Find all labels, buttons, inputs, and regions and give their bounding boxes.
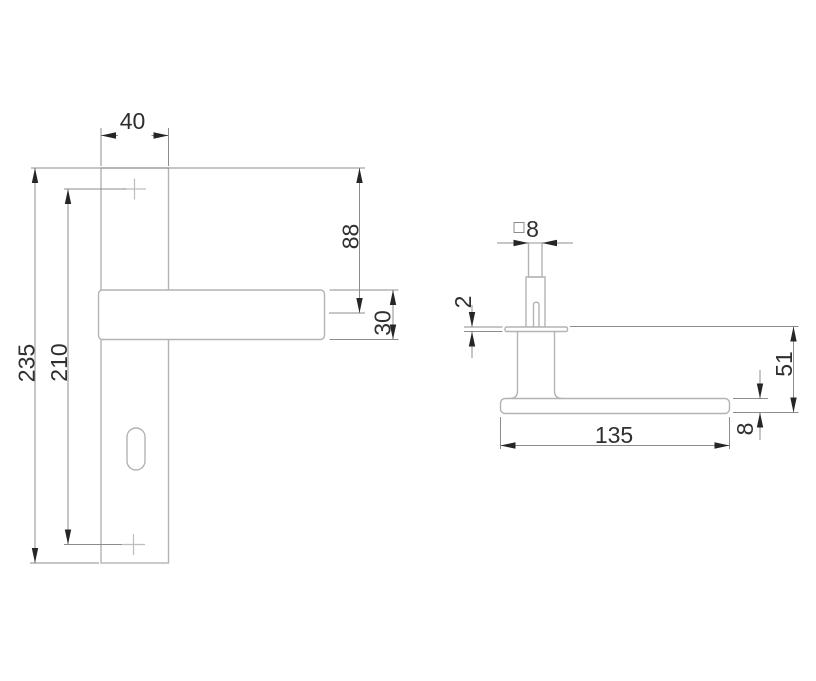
dim-rosette-thickness-value: 2 (450, 296, 476, 309)
square-section-symbol-icon (514, 223, 524, 233)
drawing-page: 40 235 210 88 (0, 0, 816, 681)
backplate-outline (101, 168, 169, 563)
arrow-right-icon (154, 132, 169, 138)
arrow-up-icon (469, 332, 475, 347)
dim-lever-thickness: 8 (732, 370, 799, 440)
lever-front-outline (99, 290, 325, 340)
dim-lever-thickness-value: 8 (732, 423, 758, 436)
arrow-up-icon (790, 327, 796, 342)
neck-lower-left-edge (510, 332, 518, 399)
screw-mark-bottom-icon (122, 534, 145, 555)
keyhole-cutout (127, 428, 145, 470)
technical-drawing: 40 235 210 88 (0, 0, 816, 681)
arrow-right-icon (715, 442, 730, 448)
arrow-left-icon (101, 132, 116, 138)
arrow-up-icon (65, 189, 71, 204)
dim-lever-height-value: 30 (370, 310, 396, 336)
dim-lever-height: 30 (330, 290, 399, 340)
arrow-down-icon (32, 548, 38, 563)
arrow-down-icon (469, 312, 475, 327)
neck-lower-right-edge (555, 332, 563, 399)
front-view: 40 235 210 88 (14, 108, 399, 563)
arrow-up-icon (390, 290, 396, 305)
arrow-down-icon (790, 398, 796, 413)
dim-plate-width-value: 40 (120, 108, 146, 134)
arrow-left-icon (542, 240, 557, 246)
spindle-slot-outline (534, 302, 540, 327)
arrow-up-icon (356, 168, 362, 183)
dim-lever-length-value: 135 (595, 422, 633, 448)
arrow-left-icon (501, 442, 516, 448)
lever-side-outline (501, 399, 730, 414)
dim-plate-width: 40 (101, 108, 169, 166)
dim-plate-height-value: 235 (14, 344, 40, 382)
dim-spindle-size: 8 (497, 216, 573, 246)
dim-spindle-size-value: 8 (526, 216, 539, 242)
dim-top-to-lever-value: 88 (338, 224, 364, 250)
arrow-down-icon (757, 384, 763, 399)
dim-top-to-lever: 88 (329, 168, 365, 313)
dim-screw-spacing-value: 210 (46, 343, 72, 381)
dim-rosette-thickness: 2 (450, 296, 503, 358)
dim-projection-value: 51 (771, 351, 797, 377)
spindle-outline (529, 243, 543, 277)
arrow-up-icon (32, 168, 38, 183)
arrow-down-icon (356, 298, 362, 313)
side-view: 8 2 51 8 (450, 216, 799, 449)
dim-lever-length: 135 (501, 417, 730, 449)
rosette-outline (505, 327, 568, 332)
screw-mark-top-icon (123, 179, 146, 200)
dim-screw-spacing: 210 (46, 189, 126, 545)
arrow-down-icon (65, 530, 71, 545)
